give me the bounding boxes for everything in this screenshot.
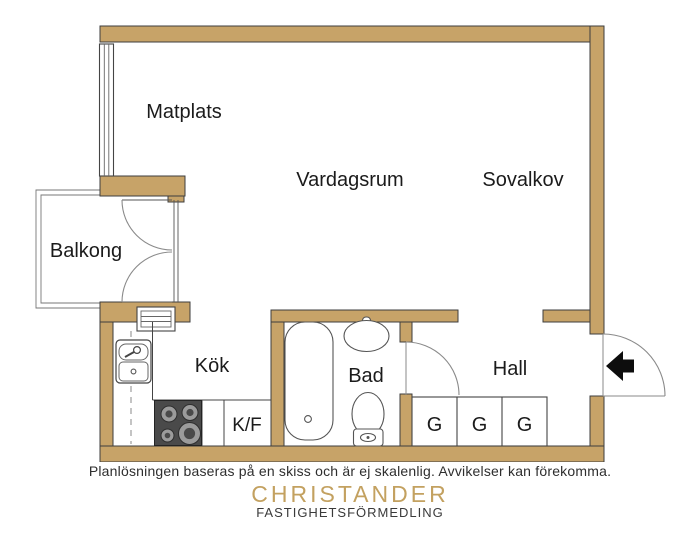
wall-bath-right-lower [400, 394, 412, 446]
stove-burner-center [184, 428, 195, 439]
wall-top [100, 26, 604, 42]
brand-tagline: FASTIGHETSFÖRMEDLING [0, 505, 700, 520]
washbasin-icon [344, 321, 389, 352]
wardrobe-label: G [427, 414, 443, 436]
window-left-frame [100, 44, 114, 176]
stove-burner-center [186, 409, 193, 416]
floor-plan-page: G G G Matplats Vardagsrum Sovalkov Balko… [0, 0, 700, 548]
room-label-matplats: Matplats [146, 101, 222, 123]
wall-right-lower [590, 396, 604, 446]
toilet-flush-dot [367, 436, 370, 439]
floor-plan: G G G Matplats Vardagsrum Sovalkov Balko… [0, 0, 700, 462]
entry-arrow-icon [606, 351, 634, 381]
wardrobe-label: G [517, 414, 533, 436]
wall-bottom [100, 446, 604, 462]
wall-kitchen-bath [271, 310, 284, 446]
stove-burner-center [165, 433, 171, 439]
room-label-balkong: Balkong [50, 240, 122, 262]
wardrobe-label: G [472, 414, 488, 436]
stove-icon [155, 401, 202, 446]
room-label-kok: Kök [195, 355, 230, 377]
wardrobes: G G G [412, 397, 547, 446]
wall-left-lower [100, 322, 113, 446]
wall-balcony-upper-bar [100, 176, 185, 196]
room-label-sovalkov: Sovalkov [482, 169, 563, 191]
brand-logo: CHRISTANDER [0, 481, 700, 508]
window-kitchen-icon [137, 307, 175, 331]
room-label-vardagsrum: Vardagsrum [296, 169, 403, 191]
bathroom-door-swing-arc [406, 342, 459, 395]
room-label-bad: Bad [348, 365, 384, 387]
entry-door-icon [603, 334, 665, 396]
sink-tap [134, 347, 141, 354]
balcony-door-swing-arc [122, 252, 172, 302]
balcony-door-icon [122, 200, 178, 302]
wall-hall-top [543, 310, 590, 322]
fridge-freezer-label: K/F [232, 415, 262, 436]
wall-right-upper [590, 26, 604, 334]
wall-balcony-door-stub [168, 196, 184, 202]
window-kitchen-inner [141, 311, 171, 327]
wall-bath-door-stub [400, 322, 412, 342]
room-label-hall: Hall [493, 358, 527, 380]
bathtub-drain [305, 416, 312, 423]
balcony-door-swing-arc [122, 200, 172, 250]
stove-burner-center [165, 410, 172, 417]
bathroom-door-icon [406, 342, 459, 395]
kitchen-sink-icon [116, 340, 151, 383]
sink-drain [131, 369, 136, 374]
disclaimer-text: Planlösningen baseras på en skiss och är… [0, 463, 700, 479]
window-left-icon [100, 44, 114, 176]
